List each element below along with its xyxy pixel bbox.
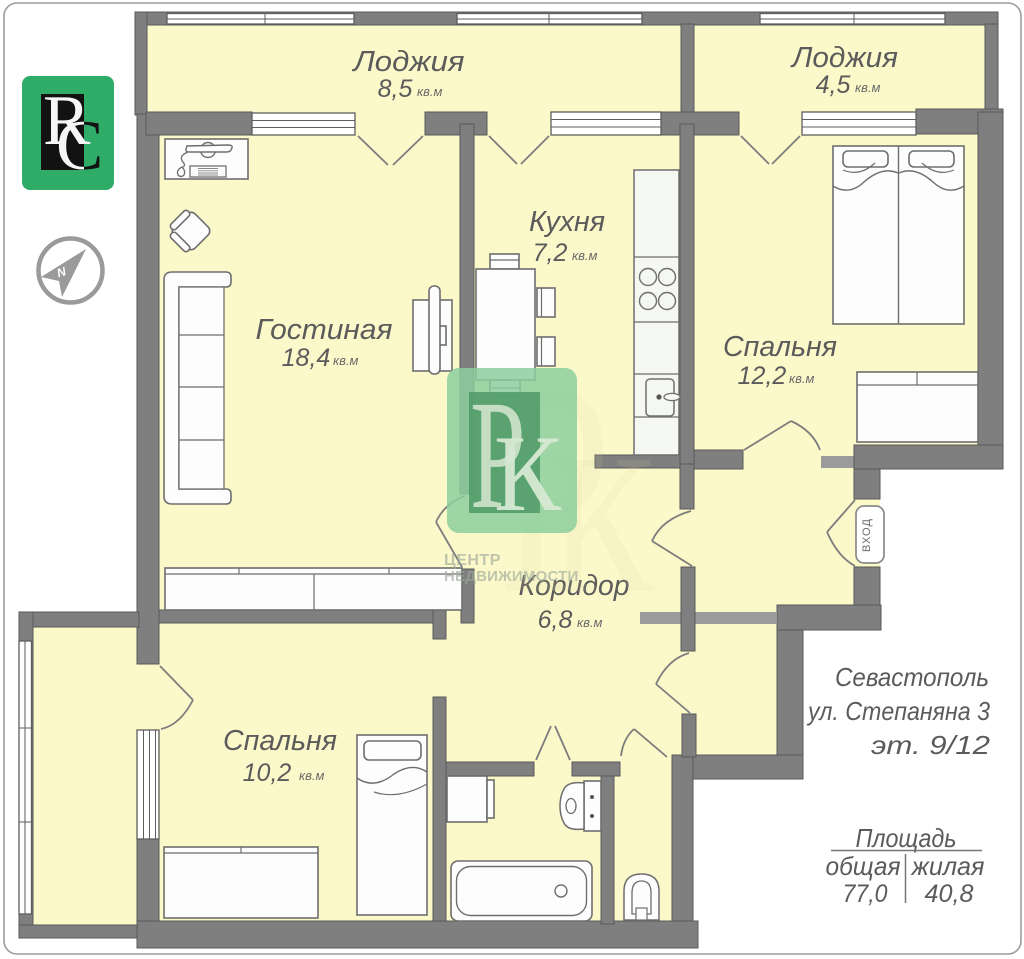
svg-text:12,2: 12,2 [738,362,787,390]
svg-text:Спальня: Спальня [723,331,837,363]
svg-text:кв.м: кв.м [299,768,325,783]
svg-text:Севастополь: Севастополь [835,662,989,692]
svg-text:Гостиная: Гостиная [256,314,393,346]
svg-text:18,4: 18,4 [282,344,331,372]
svg-text:кв.м: кв.м [333,353,359,368]
svg-text:ул. Степаняна 3: ул. Степаняна 3 [806,696,990,726]
svg-text:К: К [494,413,562,534]
svg-text:4,5: 4,5 [816,71,851,99]
svg-text:общая: общая [826,851,901,881]
svg-text:кв.м: кв.м [572,248,598,263]
svg-text:кв.м: кв.м [855,80,881,95]
svg-text:эт. 9/12: эт. 9/12 [871,730,991,760]
svg-text:кв.м: кв.м [417,84,443,99]
svg-text:Спальня: Спальня [223,725,337,757]
svg-text:жилая: жилая [911,851,985,881]
svg-text:10,2: 10,2 [243,759,292,787]
svg-text:ВХОД: ВХОД [861,518,873,552]
svg-text:ЦЕНТР: ЦЕНТР [444,552,501,569]
svg-text:7,2: 7,2 [533,239,568,267]
svg-text:77,0: 77,0 [843,880,888,908]
svg-text:Кухня: Кухня [529,206,605,238]
svg-text:Лоджия: Лоджия [351,46,464,78]
svg-text:Лоджия: Лоджия [790,42,898,74]
svg-text:НЕДВИЖИМОСТИ: НЕДВИЖИМОСТИ [444,568,578,585]
svg-text:кв.м: кв.м [789,371,815,386]
svg-text:40,8: 40,8 [925,880,974,908]
svg-text:8,5: 8,5 [378,75,413,103]
svg-text:Площадь: Площадь [856,823,957,853]
